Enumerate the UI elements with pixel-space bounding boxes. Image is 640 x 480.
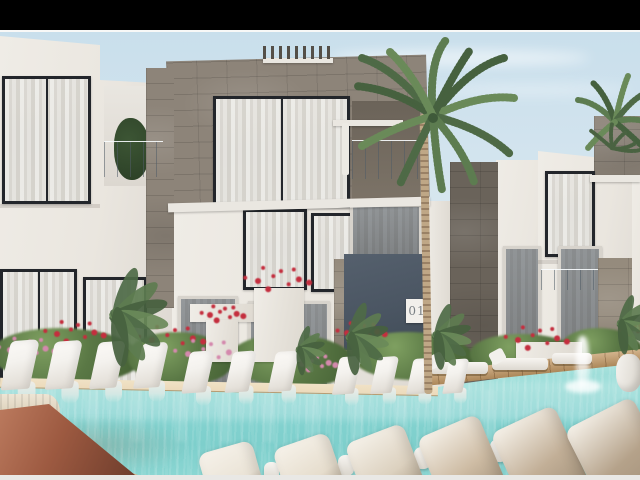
flower-cluster (624, 328, 628, 332)
bottom-strip (0, 475, 640, 480)
flower-cluster (150, 338, 154, 342)
flower-cluster (55, 332, 59, 336)
in-pool-lounger (186, 351, 211, 406)
in-pool-lounger (374, 357, 396, 405)
balcony-rail (352, 140, 420, 179)
window (2, 76, 91, 204)
in-pool-lounger (336, 357, 359, 407)
flower-cluster (516, 338, 520, 342)
planter-vase (616, 354, 640, 392)
window (350, 204, 422, 259)
pergola (263, 46, 333, 59)
fountain-splash (565, 380, 601, 393)
window (213, 96, 350, 208)
in-pool-lounger (446, 359, 467, 404)
slab-shadow (0, 204, 100, 208)
in-pool-lounger (94, 341, 122, 403)
letterboxed-render: 01 (0, 0, 640, 480)
terrace-rail (104, 141, 163, 177)
terrace-stone-wall (594, 116, 640, 178)
flower-cluster (256, 279, 260, 283)
stone-column (146, 68, 174, 308)
glass-rail (541, 269, 598, 290)
flower-cluster (345, 331, 349, 335)
window (545, 171, 595, 257)
in-pool-lounger (229, 351, 254, 405)
flower-cluster (300, 362, 304, 366)
in-pool-lounger (50, 341, 79, 404)
photo: 01 (0, 30, 640, 475)
flower-cluster (208, 313, 212, 317)
in-pool-lounger (272, 351, 296, 404)
roof-slab (590, 175, 640, 182)
white-column (342, 123, 349, 175)
cloud (430, 84, 630, 96)
in-pool-lounger (138, 343, 165, 402)
window (243, 209, 307, 290)
